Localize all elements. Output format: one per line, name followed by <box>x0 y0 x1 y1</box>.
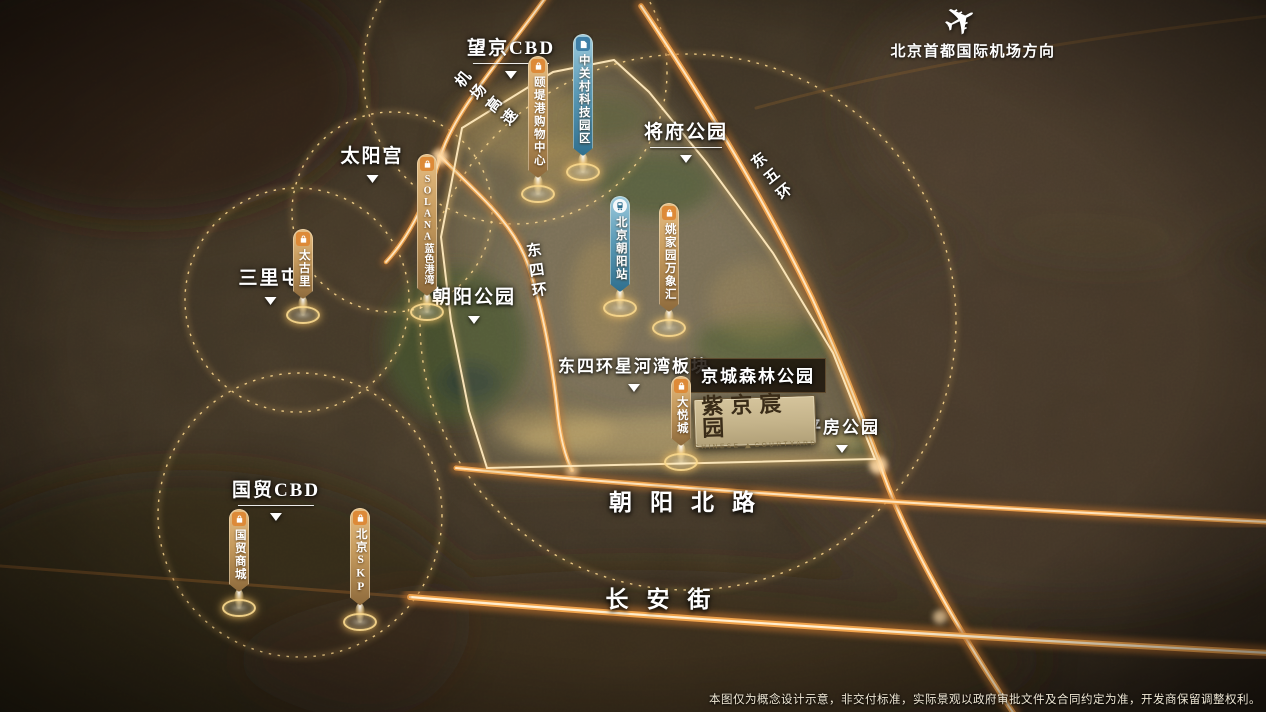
pin-label: 国贸商城 <box>233 529 245 581</box>
label-underline <box>238 505 314 506</box>
area-label-text: 东四环星河湾板块 <box>558 352 710 377</box>
pin-beijing-skp: 北京SKP <box>343 508 377 631</box>
pin-solana: SOLANA蓝色港湾 <box>410 154 444 321</box>
area-label-jiangfu-park: 将府公园 <box>644 117 728 163</box>
pin-base-glow <box>286 306 320 324</box>
pin-label: 颐堤港购物中心 <box>532 76 544 167</box>
road-label-changan-street: 长安街 <box>588 580 729 614</box>
pin-ribbon: SOLANA蓝色港湾 <box>417 154 437 296</box>
train-station-icon <box>613 199 627 213</box>
pin-base-glow <box>652 319 686 337</box>
shopping-bag-icon <box>531 59 545 73</box>
pin-base-glow <box>566 163 600 181</box>
pin-ribbon: 北京SKP <box>350 508 370 606</box>
pointer-triangle-icon <box>680 155 692 163</box>
shopping-bag-icon <box>674 379 688 393</box>
pin-taikoo-li: 太古里 <box>286 229 320 324</box>
pin-label: SOLANA蓝色港湾 <box>422 174 432 285</box>
area-label-taiyanggong: 太阳宫 <box>340 141 403 183</box>
shopping-bag-icon <box>662 206 676 220</box>
shopping-bag-icon <box>420 157 434 171</box>
pointer-triangle-icon <box>505 71 517 79</box>
pointer-triangle-icon <box>836 445 848 453</box>
project-name: 紫京宸园 <box>694 392 815 440</box>
pin-base-glow <box>343 613 377 631</box>
pin-zhongguancun-tech-park: 中关村科技园区 <box>566 34 600 181</box>
pin-ribbon: 国贸商城 <box>229 509 249 592</box>
pin-ribbon: 北京朝阳站 <box>610 196 630 292</box>
pin-yaojiayuan-mixc: 姚家园万象汇 <box>652 203 686 337</box>
aerial-marketing-map: 望京CBD 太阳宫 三里屯 将府公园 朝阳公园 国贸CBD 平房公园 东四环星河… <box>0 0 1266 712</box>
area-label-text: 太阳宫 <box>340 141 403 168</box>
shopping-bag-icon <box>353 511 367 525</box>
pin-label: 姚家园万象汇 <box>663 223 675 301</box>
shopping-bag-icon <box>296 232 310 246</box>
pin-indigo-mall: 颐堤港购物中心 <box>521 56 555 203</box>
area-label-text: 国贸CBD <box>232 475 320 502</box>
pointer-triangle-icon <box>270 513 282 521</box>
shopping-bag-icon <box>232 512 246 526</box>
pin-label: 北京朝阳站 <box>614 216 626 281</box>
pin-ribbon: 大悦城 <box>671 376 691 446</box>
road-label-chaoyang-north-road: 朝阳北路 <box>591 483 773 517</box>
pin-ribbon: 太古里 <box>293 229 313 299</box>
label-underline <box>650 147 722 148</box>
pin-china-world-mall: 国贸商城 <box>222 509 256 617</box>
project-name-plaque: 紫京宸园 CHINESE COURTYARD <box>693 395 817 448</box>
area-label-text: 京城森林公园 <box>690 358 826 393</box>
pin-label: 太古里 <box>297 249 309 288</box>
area-label-text: 朝阳公园 <box>432 282 516 309</box>
airport-direction-label: 北京首都国际机场方向 <box>890 40 1055 61</box>
area-label-text: 将府公园 <box>644 117 728 144</box>
project-logo-triangle-icon <box>744 443 750 448</box>
pointer-triangle-icon <box>366 175 378 183</box>
pin-ribbon: 姚家园万象汇 <box>659 203 679 312</box>
pointer-triangle-icon <box>468 316 480 324</box>
pin-label: 大悦城 <box>675 396 687 435</box>
pin-base-glow <box>603 299 637 317</box>
pin-ribbon: 颐堤港购物中心 <box>528 56 548 178</box>
pointer-triangle-icon <box>264 297 276 305</box>
pin-label: 中关村科技园区 <box>577 54 589 145</box>
pin-label: 北京SKP <box>354 528 366 595</box>
pin-base-glow <box>410 303 444 321</box>
pin-joy-city: 大悦城 <box>664 376 698 471</box>
area-label-chaoyang-park: 朝阳公园 <box>432 282 516 324</box>
pointer-triangle-icon <box>628 384 640 392</box>
pin-chaoyang-station: 北京朝阳站 <box>603 196 637 317</box>
disclaimer-text: 本图仅为概念设计示意，非交付标准，实际景观以政府审批文件及合同约定为准，开发商保… <box>709 691 1261 707</box>
pin-base-glow <box>664 453 698 471</box>
pin-base-glow <box>521 185 555 203</box>
pin-base-glow <box>222 599 256 617</box>
pin-ribbon: 中关村科技园区 <box>573 34 593 156</box>
tech-park-document-icon <box>576 37 590 51</box>
